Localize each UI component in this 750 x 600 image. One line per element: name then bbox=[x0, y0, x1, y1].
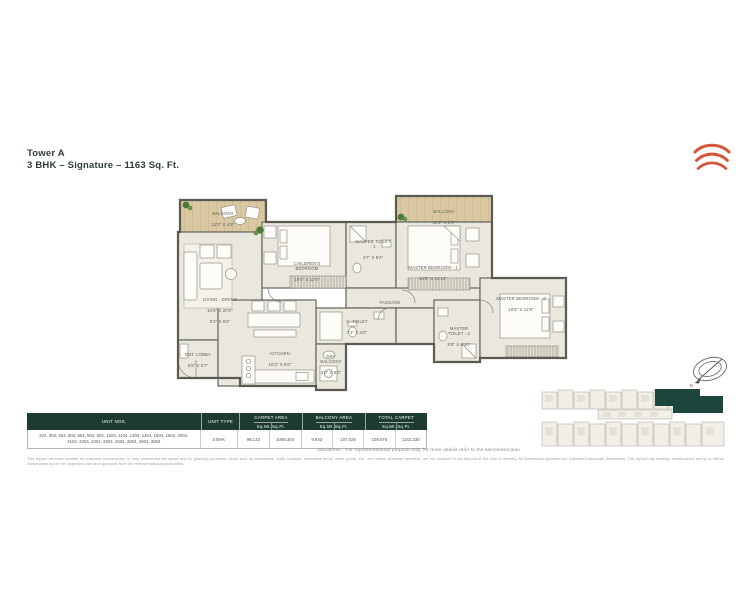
unit-config-title: 3 BHK – Signature – 1163 Sq. Ft. bbox=[27, 160, 179, 172]
col-total-carpet: TOTAL CARPET Sq.Mt. Sq.Ft. bbox=[366, 413, 427, 430]
col-balcony-sqmt: Sq.Mt. bbox=[320, 423, 335, 430]
fine-print-text: This layout has been created for custome… bbox=[27, 456, 724, 467]
cell-total-sqft: 1163.330 bbox=[396, 430, 426, 448]
label-living-dining: LIVING - DINING 10'6" X 20'0" 5'2" X 8'6… bbox=[203, 291, 237, 330]
tower-name: Tower A bbox=[27, 148, 179, 160]
label-passage: PASSAGE bbox=[380, 294, 401, 311]
cell-total-sqmt: 108.076 bbox=[364, 430, 395, 448]
hall-nook-area bbox=[396, 308, 434, 344]
label-master-toilet-2: MASTER TOILET - 2 5'8" X 8'10" bbox=[442, 320, 476, 353]
brochure-page: Tower A 3 BHK – Signature – 1163 Sq. Ft. bbox=[0, 0, 750, 600]
col-balcony-area: BALCONY AREA Sq.Mt. Sq.Ft. bbox=[303, 413, 365, 430]
col-total-sqft: Sq.Ft. bbox=[397, 423, 410, 430]
brand-logo-icon bbox=[692, 141, 732, 175]
table-row: 204, 304, 404, 504, 604, 804, 904, 1004,… bbox=[27, 430, 427, 449]
label-ent-lobby: ENT. LOBBY 6'5" X 5'7" bbox=[183, 346, 213, 374]
cell-balcony-sqmt: 9.943 bbox=[302, 430, 333, 448]
col-carpet-area: CARPET AREA Sq.Mt. Sq.Ft. bbox=[240, 413, 303, 430]
label-master-bedroom-2: MASTER BEDROOM - 2 10'6" X 12'6" bbox=[493, 290, 549, 318]
dining-furniture bbox=[248, 301, 300, 337]
col-unit-nos: UNIT NOS. bbox=[27, 413, 202, 430]
cell-carpet-sqmt: 98.133 bbox=[238, 430, 270, 448]
label-balcony-2: BALCONY 11'2" X 2'9" bbox=[433, 203, 456, 231]
compass-icon: N bbox=[688, 350, 734, 390]
col-balcony-sqft: Sq.Ft. bbox=[335, 423, 348, 430]
area-table-header: UNIT NOS. UNIT TYPE CARPET AREA Sq.Mt. S… bbox=[27, 413, 427, 430]
key-plan-highlighted-unit bbox=[655, 389, 723, 413]
label-master-bedroom-1: MASTER BEDROOM - 1 10'8" X 12'10" bbox=[407, 259, 459, 287]
page-title: Tower A 3 BHK – Signature – 1163 Sq. Ft. bbox=[27, 148, 179, 172]
label-childrens-bedroom: CHILDREN'S BEDROOM 10'4" X 12'0" bbox=[284, 255, 330, 288]
disclaimer-text: Disclaimer : For representational purpos… bbox=[27, 448, 520, 453]
cell-balcony-sqft: 107.026 bbox=[333, 430, 364, 448]
label-kitchen: KITCHEN 10'2" X 8'0" bbox=[268, 345, 291, 373]
col-total-sqmt: Sq.Mt. bbox=[382, 423, 397, 430]
col-carpet-sqmt: Sq.Mt. bbox=[257, 423, 272, 430]
label-master-toilet-1: MASTER TOILET - 1 4'7" X 8'4" bbox=[355, 233, 391, 266]
col-unit-type: UNIT TYPE bbox=[202, 413, 240, 430]
area-table: UNIT NOS. UNIT TYPE CARPET AREA Sq.Mt. S… bbox=[27, 413, 427, 449]
cell-unit-nos: 204, 304, 404, 504, 604, 804, 904, 1004,… bbox=[28, 430, 201, 448]
label-common-toilet: C. TOILET 7'1" X 4'0" bbox=[337, 313, 377, 341]
key-plan bbox=[540, 386, 730, 452]
cell-carpet-sqft: 1056.304 bbox=[270, 430, 302, 448]
col-carpet-sqft: Sq.Ft. bbox=[272, 423, 285, 430]
label-balcony-1: BALCONY 11'0" X 4'9" bbox=[212, 205, 235, 233]
label-dry-balcony: DRY BALCONY 3'0" X 8'0" bbox=[318, 348, 344, 381]
cell-unit-type: 3 BHK bbox=[201, 430, 238, 448]
